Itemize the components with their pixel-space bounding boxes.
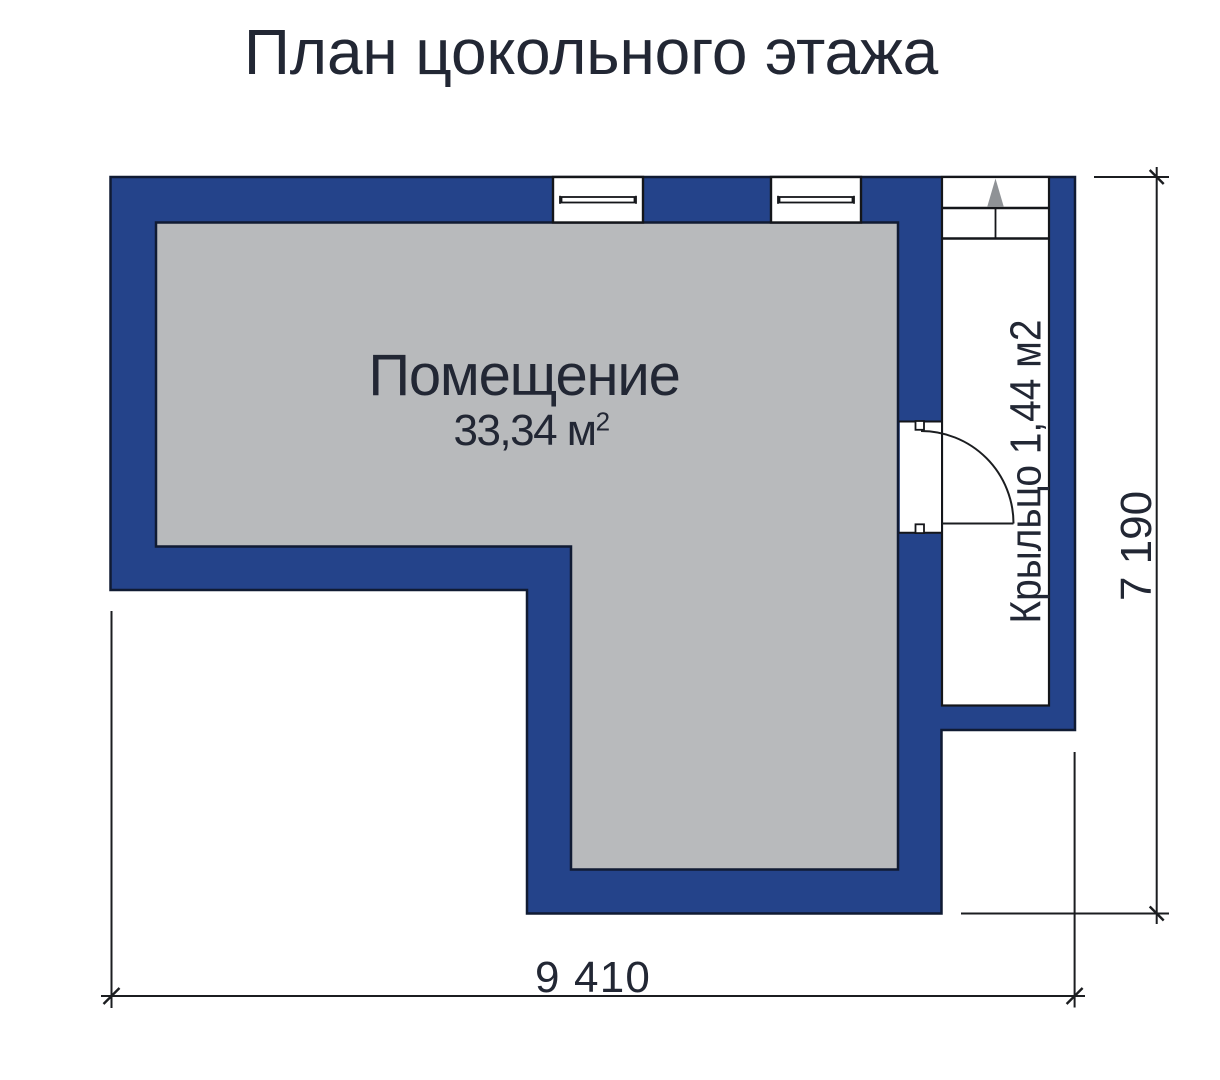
svg-text:План цокольного этажа: План цокольного этажа bbox=[244, 16, 939, 88]
svg-text:9 410: 9 410 bbox=[535, 953, 651, 1002]
svg-text:Крыльцо 1,44 м2: Крыльцо 1,44 м2 bbox=[1002, 320, 1051, 624]
svg-text:33,34 м2: 33,34 м2 bbox=[453, 406, 609, 455]
svg-text:7 190: 7 190 bbox=[1112, 491, 1161, 601]
svg-text:Помещение: Помещение bbox=[368, 343, 679, 408]
